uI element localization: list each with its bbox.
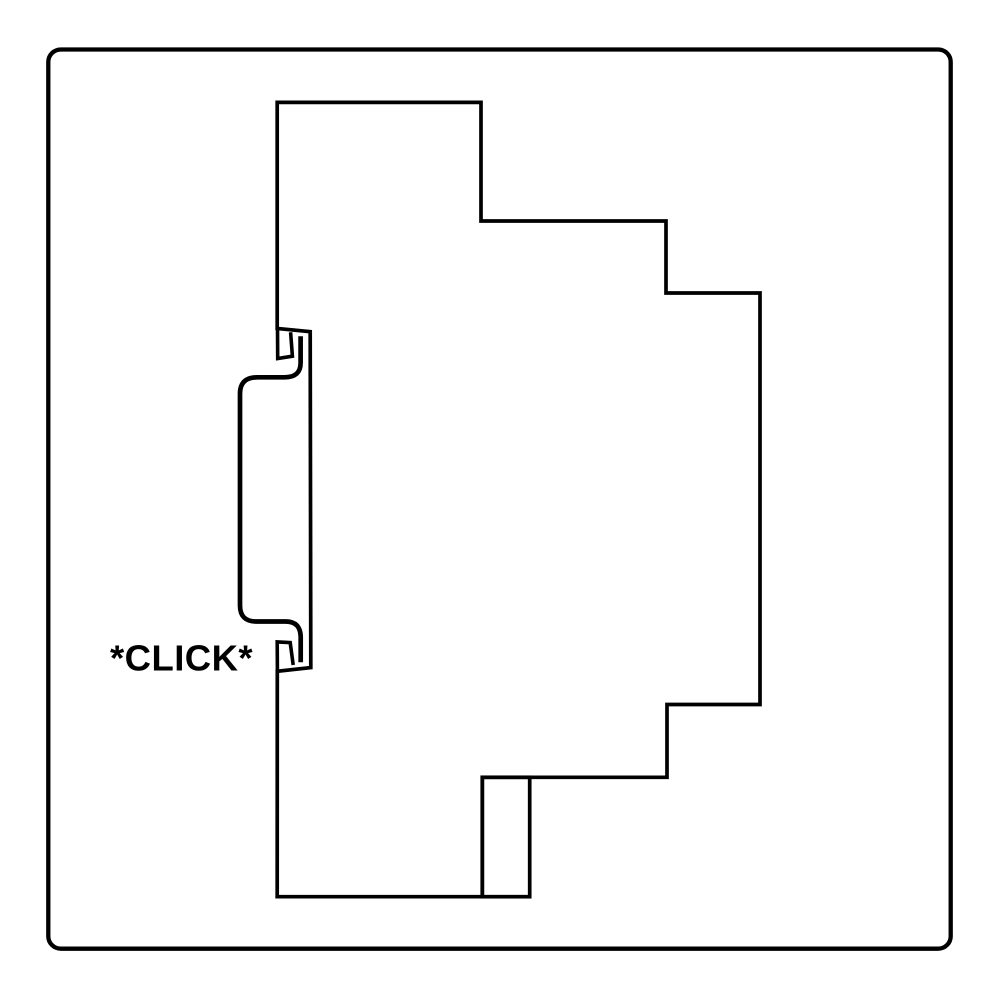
svg-text:*CLICK*: *CLICK* bbox=[110, 637, 253, 678]
